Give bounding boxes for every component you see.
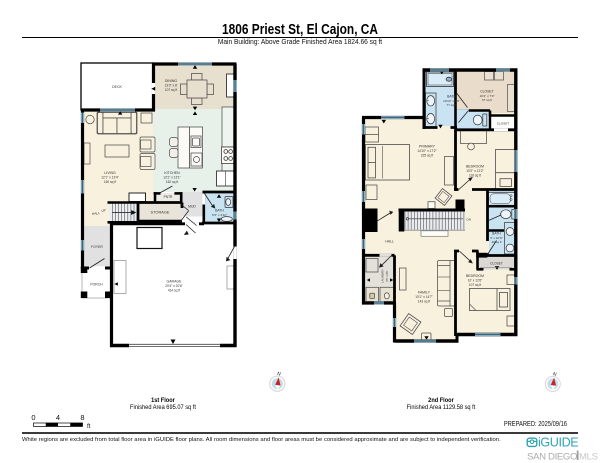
svg-text:KITCHEN: KITCHEN [164, 171, 180, 175]
svg-text:57 sq ft: 57 sq ft [482, 98, 492, 102]
svg-text:iGUIDE: iGUIDE [538, 435, 578, 449]
svg-text:162 sq ft: 162 sq ft [166, 180, 178, 184]
svg-text:0: 0 [31, 413, 35, 422]
svg-text:13'3" x 8': 13'3" x 8' [165, 84, 178, 88]
svg-text:PORCH: PORCH [90, 283, 103, 287]
svg-text:GARAGE: GARAGE [167, 280, 183, 284]
svg-text:LAUNDRY: LAUNDRY [381, 269, 385, 283]
svg-text:10'1" x 14'7": 10'1" x 14'7" [415, 295, 432, 299]
svg-text:40 sq ft: 40 sq ft [492, 240, 502, 244]
svg-text:CLOSET: CLOSET [490, 261, 503, 265]
svg-text:12'1" x 13'4": 12'1" x 13'4" [101, 176, 118, 180]
svg-text:BEDROOM: BEDROOM [466, 274, 484, 278]
svg-text:BEDROOM: BEDROOM [466, 165, 484, 169]
svg-text:118 sq ft: 118 sq ft [469, 174, 481, 178]
svg-text:5'3" x 4'11": 5'3" x 4'11" [212, 213, 227, 217]
svg-text:10' x 12'6": 10' x 12'6" [468, 279, 483, 283]
svg-text:4: 4 [56, 413, 60, 422]
svg-text:8: 8 [80, 413, 84, 422]
svg-text:143 sq ft: 143 sq ft [418, 300, 430, 304]
svg-text:PRIMARY: PRIMARY [419, 145, 436, 149]
svg-text:5'5" x 6'6": 5'5" x 6'6" [385, 270, 389, 281]
svg-text:DN: DN [467, 217, 471, 221]
svg-text:MUD: MUD [188, 205, 196, 209]
svg-text:CLOSET: CLOSET [497, 122, 509, 126]
svg-text:SAN DIEGO: SAN DIEGO [527, 451, 577, 462]
svg-text:14'10" x 17'2": 14'10" x 17'2" [417, 149, 436, 153]
svg-text:DECK: DECK [112, 85, 122, 89]
svg-text:20'4" x 20'6": 20'4" x 20'6" [165, 284, 182, 288]
svg-text:HALL: HALL [385, 240, 394, 244]
svg-text:10'2" x 12'2": 10'2" x 12'2" [466, 169, 483, 173]
svg-text:414 sq ft: 414 sq ft [168, 289, 180, 293]
svg-text:FOYER: FOYER [91, 245, 103, 249]
svg-text:107 sq ft: 107 sq ft [165, 88, 177, 92]
svg-text:107 sq ft: 107 sq ft [469, 283, 481, 287]
svg-text:77 sq ft: 77 sq ft [447, 103, 457, 107]
svg-text:13'1" x 13'1": 13'1" x 13'1" [163, 176, 180, 180]
svg-text:225 sq ft: 225 sq ft [421, 154, 433, 158]
svg-text:ft: ft [87, 423, 91, 430]
svg-text:FAMILY: FAMILY [418, 291, 431, 295]
svg-text:PNTR: PNTR [164, 195, 173, 199]
svg-text:LIVING: LIVING [104, 171, 116, 175]
svg-text:DINING: DINING [165, 79, 178, 83]
svg-text:160 sq ft: 160 sq ft [104, 180, 116, 184]
svg-text:MLS: MLS [579, 451, 598, 462]
svg-text:STORAGE: STORAGE [151, 210, 170, 215]
